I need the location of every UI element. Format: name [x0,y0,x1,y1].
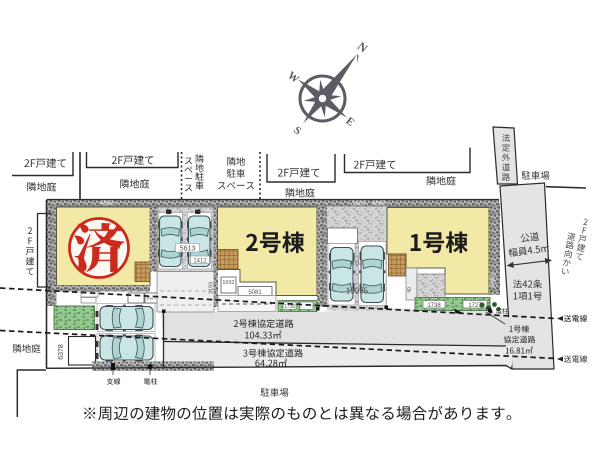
svg-text:10955: 10955 [346,287,369,296]
svg-text:6378: 6378 [58,344,65,360]
svg-text:1692: 1692 [222,280,234,286]
svg-text:6060: 6060 [372,201,386,207]
svg-text:9691: 9691 [491,273,497,287]
svg-text:4692: 4692 [350,261,362,267]
svg-text:4550: 4550 [100,201,114,207]
svg-text:1738: 1738 [427,303,441,309]
svg-text:5081: 5081 [248,290,262,296]
svg-text:3193: 3193 [209,282,215,294]
svg-text:9100: 9100 [352,201,366,207]
svg-text:1412: 1412 [193,259,207,265]
svg-text:1738: 1738 [284,304,295,310]
svg-text:5613: 5613 [180,246,196,253]
svg-text:40: 40 [407,287,413,293]
